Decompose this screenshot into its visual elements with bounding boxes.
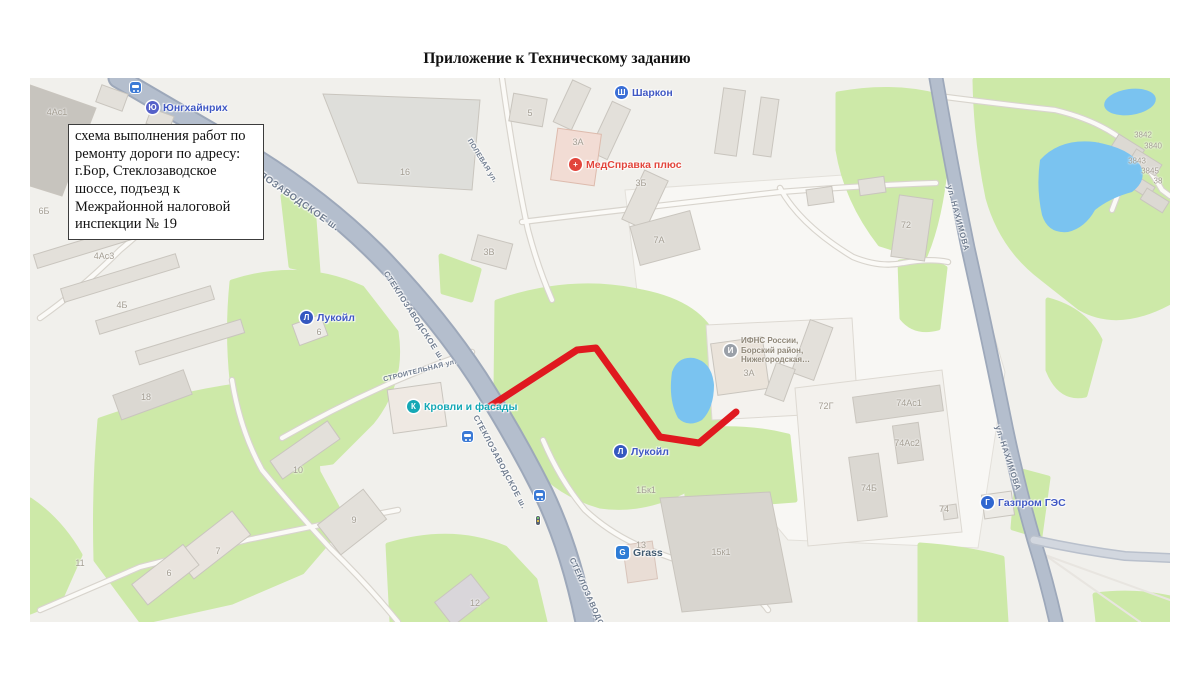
building-number: 4Ас1	[47, 107, 68, 117]
street-label: СТЕКЛОЗАВОДСКОЕ ш.	[568, 556, 619, 622]
poi-sharkon[interactable]: Ш Шаркон	[615, 86, 673, 99]
building-number: 38	[1154, 177, 1163, 186]
medical-cross-icon: +	[569, 158, 582, 171]
building-number: 72Г	[819, 401, 834, 411]
fuel-station-icon: Л	[300, 311, 313, 324]
street-label: ул. НАХИМОВА	[993, 424, 1023, 491]
building-number: 6	[316, 327, 321, 337]
brand-icon: Ю	[146, 101, 159, 114]
building-number: 6Б	[39, 206, 50, 216]
traffic-light-icon	[536, 516, 540, 525]
building-number: 5	[527, 108, 532, 118]
gas-flame-icon: Г	[981, 496, 994, 509]
poi-ifns[interactable]: И ИФНС России, Борский район, Нижегородс…	[724, 336, 810, 365]
government-building-icon: И	[724, 344, 737, 357]
poi-gazprom[interactable]: Г Газпром ГЭС	[981, 496, 1066, 509]
building-number: 18	[141, 392, 151, 402]
poi-label-line: ИФНС России,	[741, 336, 810, 346]
building-number: 16	[400, 167, 410, 177]
building-number: 7	[215, 546, 220, 556]
poi-label: ИФНС России, Борский район, Нижегородска…	[741, 336, 810, 365]
street-label: СТЕКЛОЗАВОДСКОЕ ш.	[382, 270, 447, 363]
car-wash-icon: G	[616, 546, 629, 559]
poi-lukoil-center[interactable]: Л Лукойл	[614, 445, 669, 458]
poi-label: Газпром ГЭС	[998, 497, 1066, 509]
street-label: ул. НАХИМОВА	[945, 184, 971, 252]
poi-label: Кровли и фасады	[424, 401, 517, 413]
building-number: 3В	[483, 247, 494, 257]
building-number: 74Ас1	[896, 398, 922, 408]
building-number: 6	[166, 568, 171, 578]
building-number: 9	[351, 515, 356, 525]
building-number: 15к1	[712, 547, 731, 557]
building-number: 3840	[1144, 142, 1162, 151]
building-number: 7А	[653, 235, 664, 245]
poi-label: Лукойл	[631, 446, 669, 458]
street-label: СТЕКЛОЗАВОДСКОЕ ш.	[471, 414, 528, 511]
street-label: ПОЛЕВАЯ ул.	[466, 138, 498, 184]
fuel-station-icon: Л	[614, 445, 627, 458]
building-number: 1Бк1	[636, 485, 656, 495]
bus-stop-icon[interactable]	[462, 431, 473, 442]
brand-icon: Ш	[615, 86, 628, 99]
building-number: 11	[75, 558, 84, 568]
poi-label-line: Борский район,	[741, 346, 810, 356]
poi-label: Шаркон	[632, 87, 673, 99]
building-number: 72	[901, 220, 911, 230]
poi-grass[interactable]: G Grass	[616, 546, 663, 559]
poi-lukoil-west[interactable]: Л Лукойл	[300, 311, 355, 324]
building-number: 74	[939, 504, 949, 514]
building-number: 74Ас2	[894, 438, 920, 448]
work-scheme-note: схема выполнения работ по ремонту дороги…	[68, 124, 264, 240]
building-number: 3845	[1141, 167, 1159, 176]
building-number: 3Б	[636, 178, 647, 188]
poi-label: Лукойл	[317, 312, 355, 324]
street-label: СТРОИТЕЛЬНАЯ ул.	[383, 359, 458, 384]
poi-medspravka[interactable]: + МедСправка плюс	[569, 158, 682, 171]
building-number: 3843	[1128, 157, 1146, 166]
poi-label-line: Нижегородская…	[741, 355, 810, 365]
building-number: 3842	[1134, 131, 1152, 140]
building-number: 4Б	[117, 300, 128, 310]
building-number: 3А	[572, 137, 583, 147]
bus-stop-icon[interactable]	[534, 490, 545, 501]
poi-label: МедСправка плюс	[586, 159, 682, 171]
building-number: 3А	[743, 368, 754, 378]
brand-icon: К	[407, 400, 420, 413]
building-number: 4Ас3	[94, 251, 115, 261]
poi-label: Юнгхайнрих	[163, 102, 228, 114]
building-number: 12	[470, 598, 480, 608]
bus-stop-icon[interactable]	[130, 82, 141, 93]
document-page: Приложение к Техническому заданию	[0, 0, 1200, 675]
building-number: 74Б	[861, 483, 877, 493]
poi-label: Grass	[633, 547, 663, 559]
poi-krovli-fasady[interactable]: К Кровли и фасады	[407, 400, 517, 413]
building-number: 10	[293, 465, 303, 475]
poi-jungheinrich[interactable]: Ю Юнгхайнрих	[146, 101, 228, 114]
